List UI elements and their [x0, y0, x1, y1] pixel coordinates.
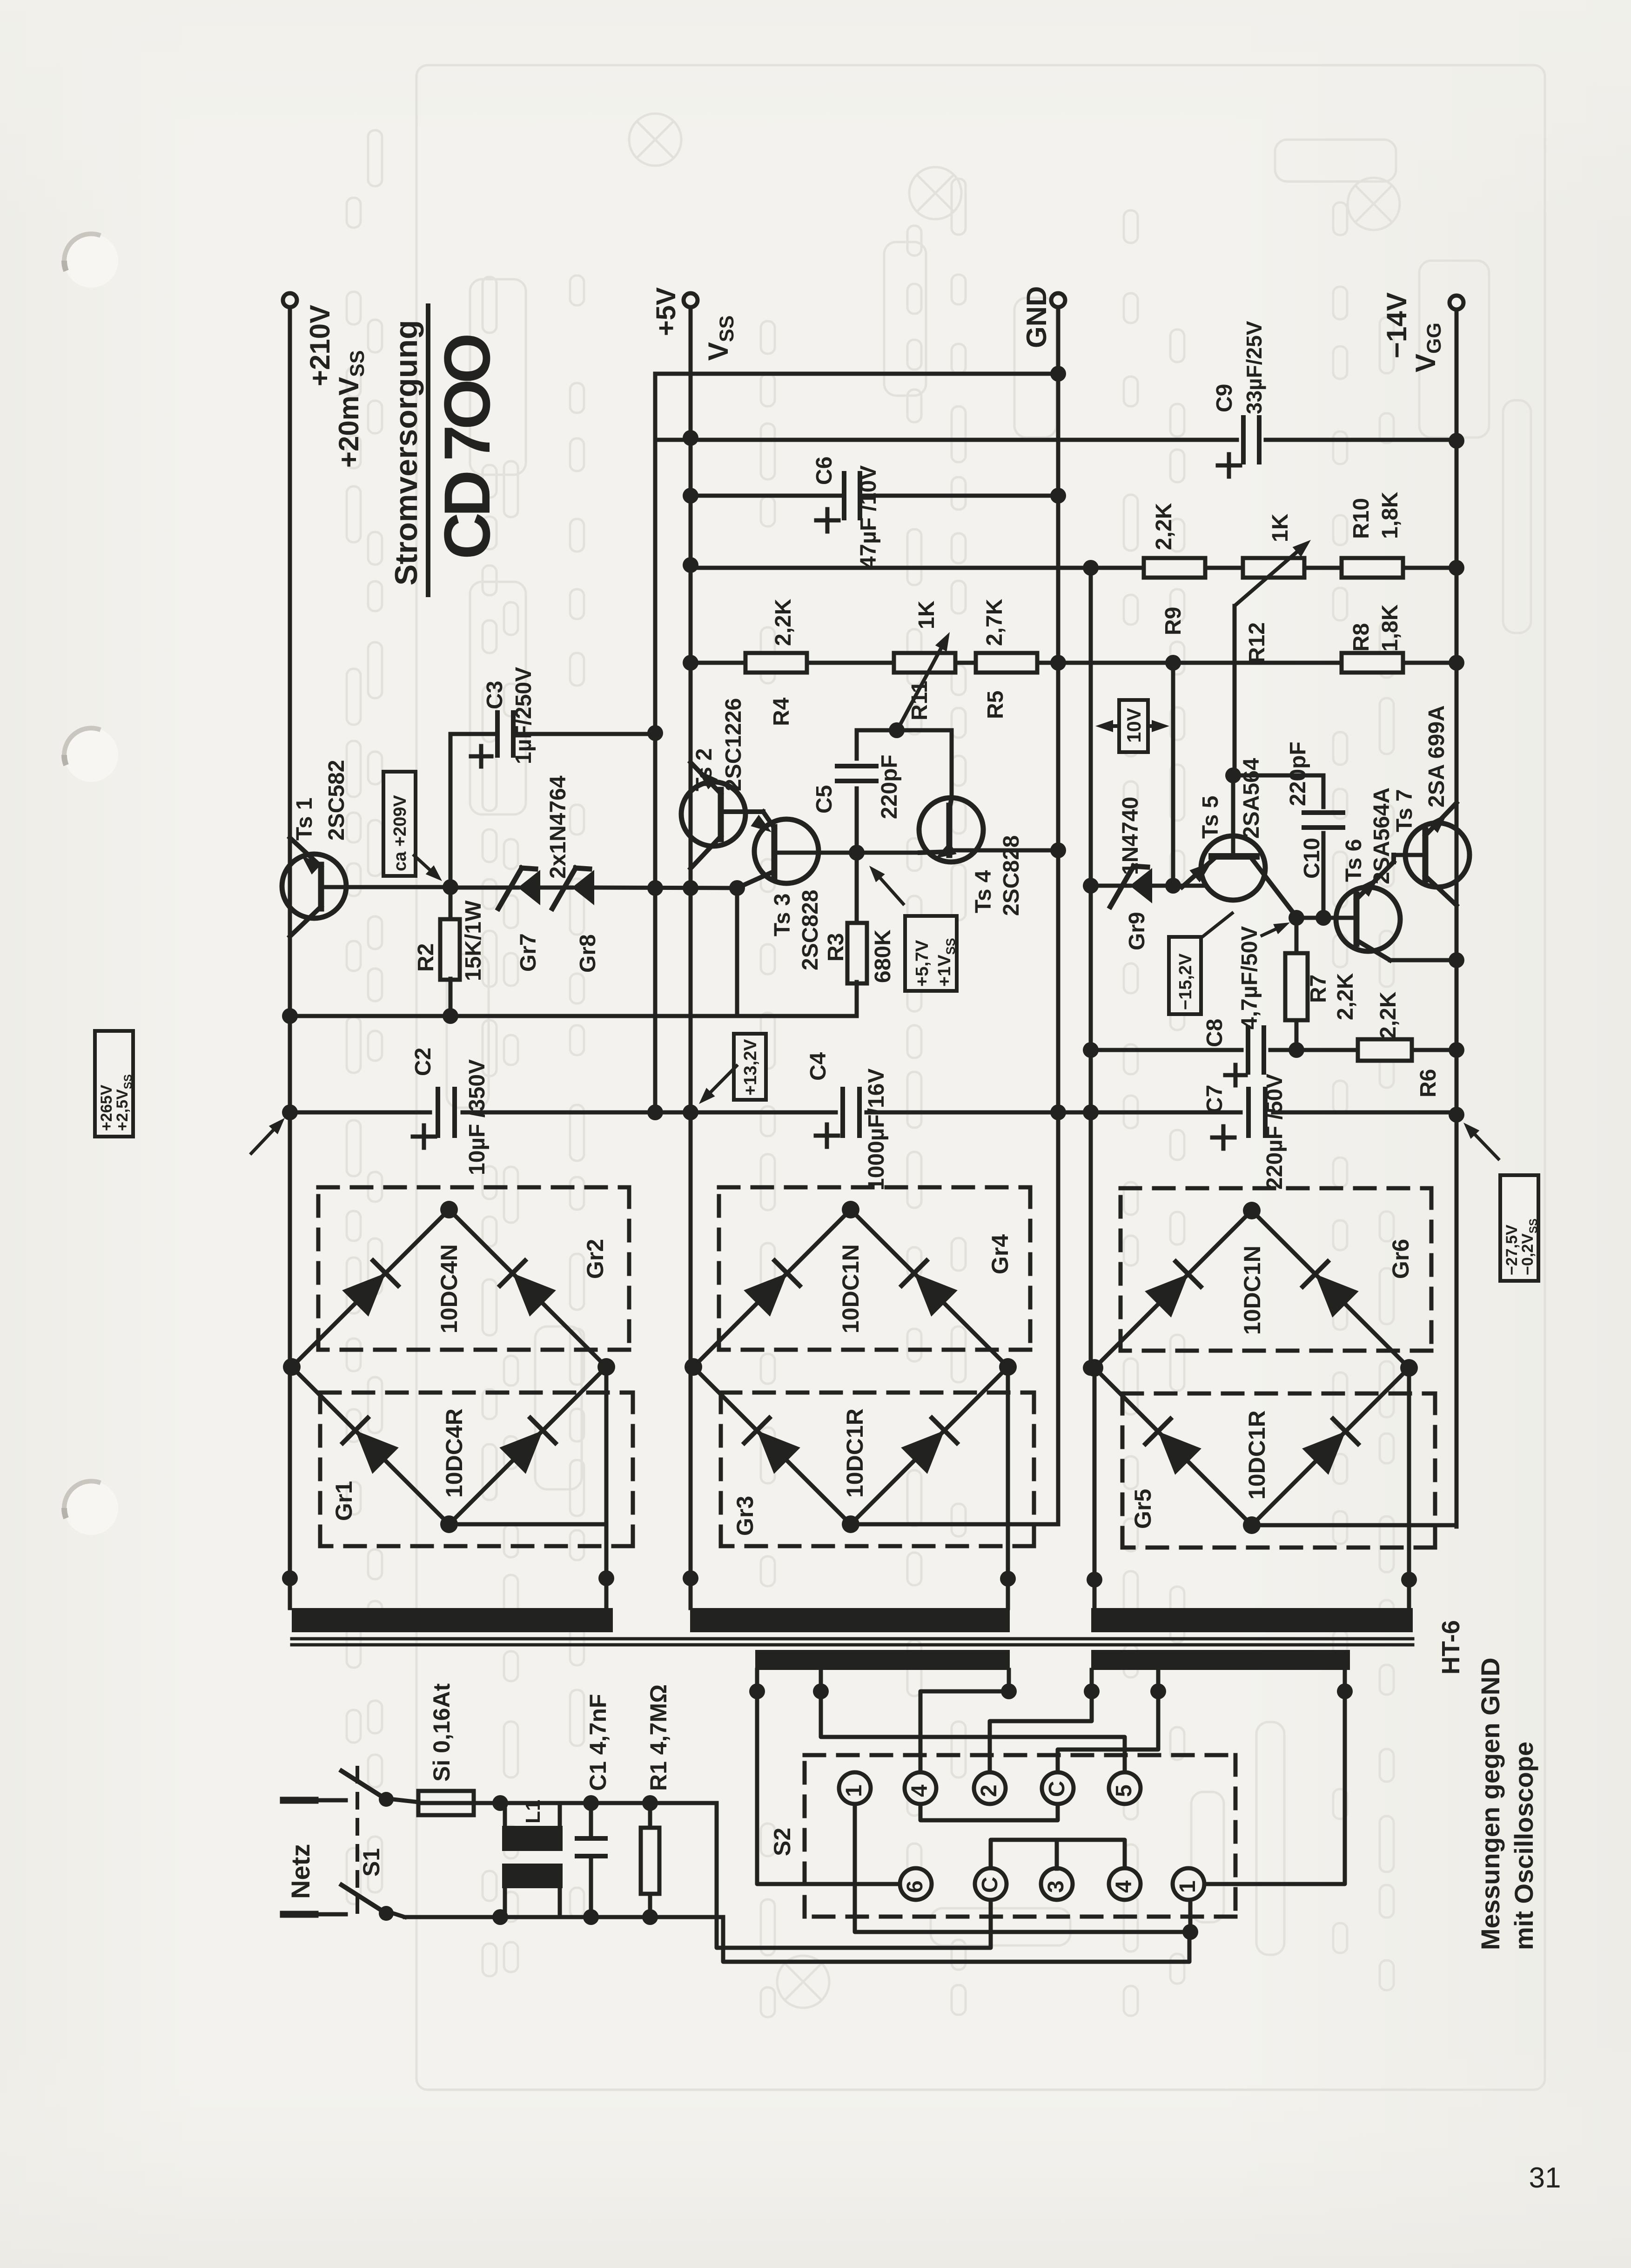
svg-text:Ts 5: Ts 5 [1198, 796, 1223, 839]
svg-text:220pF: 220pF [877, 754, 902, 819]
svg-text:15K/1W: 15K/1W [461, 900, 486, 981]
svg-text:Gr4: Gr4 [987, 1234, 1013, 1274]
svg-text:Gr8: Gr8 [576, 934, 600, 973]
svg-text:R6: R6 [1416, 1069, 1441, 1097]
svg-text:Gr1: Gr1 [331, 1481, 357, 1521]
svg-text:5: 5 [1112, 1784, 1136, 1797]
svg-text:C3: C3 [483, 681, 507, 709]
svg-text:R9: R9 [1161, 607, 1186, 635]
svg-text:680K: 680K [871, 929, 895, 983]
svg-text:R2: R2 [414, 943, 438, 972]
svg-text:ca +209V: ca +209V [390, 795, 410, 871]
svg-text:+265V: +265V [98, 1084, 115, 1131]
svg-text:C10: C10 [1300, 838, 1324, 879]
svg-text:C: C [1045, 1781, 1069, 1797]
svg-text:31: 31 [1529, 2162, 1561, 2194]
svg-text:47µF /10V: 47µF /10V [856, 465, 881, 569]
svg-text:2,2K: 2,2K [1376, 991, 1401, 1039]
svg-text:4,7µF/50V: 4,7µF/50V [1237, 926, 1262, 1030]
svg-text:HT-6: HT-6 [1437, 1620, 1465, 1675]
svg-text:−27,5V: −27,5V [1503, 1225, 1521, 1275]
svg-text:GND: GND [1021, 286, 1052, 348]
svg-text:1000µF/16V: 1000µF/16V [864, 1069, 889, 1191]
svg-text:10V: 10V [1123, 708, 1145, 743]
svg-text:1N4740: 1N4740 [1118, 797, 1143, 875]
svg-text:220µF /50V: 220µF /50V [1262, 1074, 1287, 1190]
svg-text:1,8K: 1,8K [1378, 604, 1403, 652]
svg-text:mit Oscilloscope: mit Oscilloscope [1509, 1742, 1538, 1950]
svg-text:C5: C5 [812, 785, 837, 814]
svg-text:Ts 6: Ts 6 [1342, 839, 1366, 882]
svg-text:1,8K: 1,8K [1378, 491, 1403, 539]
svg-text:10DC1R: 10DC1R [1244, 1410, 1270, 1500]
svg-text:Ts 1: Ts 1 [292, 798, 317, 841]
svg-text:R10: R10 [1349, 498, 1374, 539]
svg-text:C7: C7 [1202, 1085, 1227, 1113]
svg-text:1µF/250V: 1µF/250V [511, 667, 536, 764]
svg-text:10µF /350V: 10µF /350V [465, 1059, 490, 1175]
svg-text:R3: R3 [824, 933, 848, 962]
svg-text:1: 1 [842, 1784, 866, 1797]
svg-text:2SC828: 2SC828 [798, 890, 823, 970]
svg-text:10DC1N: 10DC1N [838, 1244, 864, 1333]
svg-text:R11: R11 [907, 681, 932, 720]
svg-text:C9: C9 [1212, 384, 1237, 412]
svg-text:L1: L1 [522, 1800, 544, 1824]
svg-text:2SA564A: 2SA564A [1369, 787, 1394, 884]
svg-text:C6: C6 [812, 457, 837, 485]
svg-text:+13,2V: +13,2V [741, 1039, 760, 1096]
svg-text:Ts 2: Ts 2 [692, 748, 717, 791]
svg-text:−14V: −14V [1381, 292, 1412, 358]
svg-text:S1: S1 [358, 1848, 384, 1877]
svg-text:+5,7V: +5,7V [913, 940, 932, 987]
svg-text:2SC1226: 2SC1226 [721, 698, 746, 791]
svg-text:Gr2: Gr2 [582, 1239, 608, 1279]
svg-text:+210V: +210V [304, 305, 336, 386]
svg-text:10DC4R: 10DC4R [441, 1408, 467, 1498]
svg-text:R5: R5 [983, 691, 1008, 719]
svg-text:2x1N4764: 2x1N4764 [546, 775, 571, 879]
svg-text:2SC828: 2SC828 [999, 835, 1024, 916]
svg-text:Stromversorgung: Stromversorgung [389, 320, 424, 586]
svg-text:2,2K: 2,2K [1333, 973, 1358, 1020]
svg-text:2SA 699A: 2SA 699A [1424, 705, 1449, 808]
svg-text:−15,2V: −15,2V [1176, 953, 1195, 1010]
svg-text:R8: R8 [1349, 623, 1374, 652]
svg-text:Gr3: Gr3 [732, 1496, 758, 1536]
svg-text:C2: C2 [411, 1048, 436, 1076]
svg-text:Gr9: Gr9 [1125, 912, 1149, 950]
svg-text:Si 0,16At: Si 0,16At [429, 1683, 455, 1782]
svg-text:4: 4 [907, 1784, 932, 1797]
svg-text:Ts 3: Ts 3 [770, 894, 795, 936]
svg-text:3: 3 [1044, 1880, 1068, 1893]
svg-text:Gr5: Gr5 [1130, 1489, 1156, 1529]
svg-text:Gr7: Gr7 [516, 933, 541, 972]
svg-text:10DC4N: 10DC4N [436, 1244, 462, 1333]
svg-text:6: 6 [903, 1880, 927, 1893]
svg-text:2,2K: 2,2K [771, 599, 796, 646]
svg-text:R7: R7 [1306, 975, 1331, 1003]
svg-text:Netz: Netz [286, 1844, 315, 1899]
svg-text:220pF: 220pF [1286, 741, 1310, 806]
svg-text:R4: R4 [769, 697, 794, 726]
svg-text:Ts 4: Ts 4 [971, 870, 996, 913]
svg-text:10DC1R: 10DC1R [842, 1408, 868, 1498]
svg-text:2SC582: 2SC582 [324, 760, 349, 841]
svg-text:10DC1N: 10DC1N [1239, 1245, 1265, 1335]
svg-text:R12: R12 [1245, 622, 1269, 663]
svg-text:C4: C4 [806, 1052, 831, 1081]
svg-text:S2: S2 [769, 1828, 795, 1856]
svg-text:+5V: +5V [651, 287, 681, 336]
svg-text:4: 4 [1112, 1880, 1136, 1893]
svg-text:1: 1 [1175, 1880, 1200, 1893]
svg-text:2: 2 [977, 1784, 1001, 1797]
svg-text:Ts 7: Ts 7 [1392, 789, 1417, 832]
svg-text:2SA564: 2SA564 [1239, 758, 1264, 839]
svg-text:33µF/25V: 33µF/25V [1242, 321, 1266, 414]
svg-text:2,7K: 2,7K [982, 599, 1007, 646]
svg-text:Gr6: Gr6 [1388, 1239, 1414, 1279]
svg-text:2,2K: 2,2K [1152, 503, 1176, 550]
svg-text:1K: 1K [1268, 513, 1293, 542]
svg-text:R1 4,7MΩ: R1 4,7MΩ [645, 1684, 671, 1791]
svg-text:C8: C8 [1202, 1019, 1227, 1047]
svg-text:C: C [978, 1877, 1002, 1893]
svg-text:1K: 1K [914, 600, 939, 629]
svg-text:C1 4,7nF: C1 4,7nF [585, 1694, 611, 1791]
svg-text:Messungen gegen GND: Messungen gegen GND [1476, 1657, 1505, 1950]
svg-text:CD 7OO: CD 7OO [430, 335, 503, 559]
